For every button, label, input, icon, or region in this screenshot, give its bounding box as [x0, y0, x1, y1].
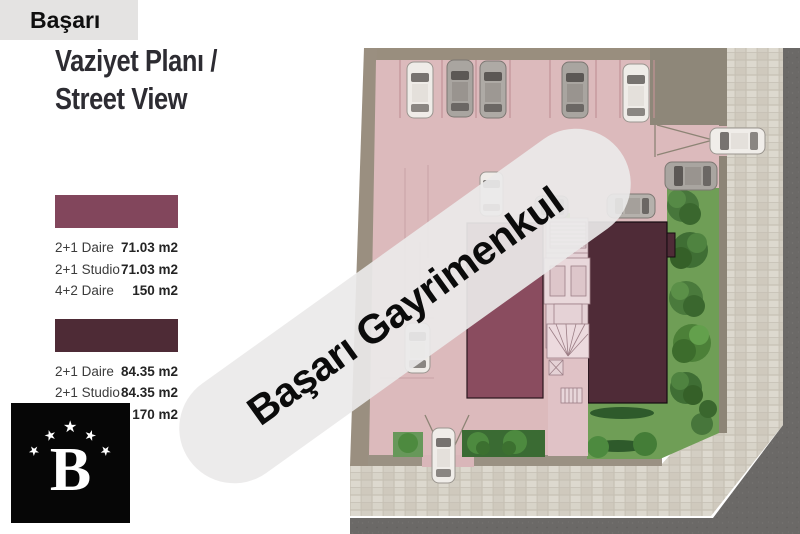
car-white [407, 62, 433, 118]
title-line1: Vaziyet Planı / [55, 42, 217, 80]
legend-row-value: 170 m2 [132, 404, 178, 426]
legend-row-label: 4+2 Daire [55, 280, 114, 302]
legend-row-label: 2+1 Studio [55, 382, 120, 404]
legend-swatch-type2 [55, 319, 178, 352]
legend-rows-type1: 2+1 Daire 71.03 m2 2+1 Studio 71.03 m2 4… [55, 237, 178, 302]
page-title: Vaziyet Planı / Street View [55, 42, 217, 118]
legend-row-label: 2+1 Daire [55, 237, 114, 259]
legend-row: 2+1 Studio 71.03 m2 [55, 259, 178, 281]
logo-star-icon: ★ [63, 421, 77, 434]
legend-row-label: 2+1 Studio [55, 259, 120, 281]
legend-row: 2+1 Studio 84.35 m2 [55, 382, 178, 404]
car-white [432, 428, 455, 483]
car-gray [562, 62, 588, 118]
brand-label: Başarı [0, 0, 138, 40]
legend-row-label: 2+1 Daire [55, 361, 114, 383]
building-type2-balcony [667, 233, 675, 257]
company-logo: ★ ★ ★ ★ ★ B [11, 403, 130, 523]
car-white [710, 128, 765, 154]
legend-swatch-type1 [55, 195, 178, 228]
legend-row-value: 71.03 m2 [121, 259, 178, 281]
car-gray [665, 162, 717, 190]
concrete-pad [650, 48, 727, 125]
legend-row-value: 150 m2 [132, 280, 178, 302]
title-line2: Street View [55, 80, 217, 118]
legend-row-value: 84.35 m2 [121, 361, 178, 383]
car-white [623, 64, 649, 122]
brand-bar: Başarı [0, 0, 138, 40]
legend-row-value: 71.03 m2 [121, 237, 178, 259]
car-gray [480, 61, 506, 118]
legend-row: 2+1 Daire 71.03 m2 [55, 237, 178, 259]
legend-row: 2+1 Daire 84.35 m2 [55, 361, 178, 383]
legend-row: 4+2 Daire 150 m2 [55, 280, 178, 302]
logo-letter: B [11, 435, 130, 506]
legend-row-value: 84.35 m2 [121, 382, 178, 404]
car-gray [447, 60, 473, 117]
building-type2 [588, 222, 667, 403]
